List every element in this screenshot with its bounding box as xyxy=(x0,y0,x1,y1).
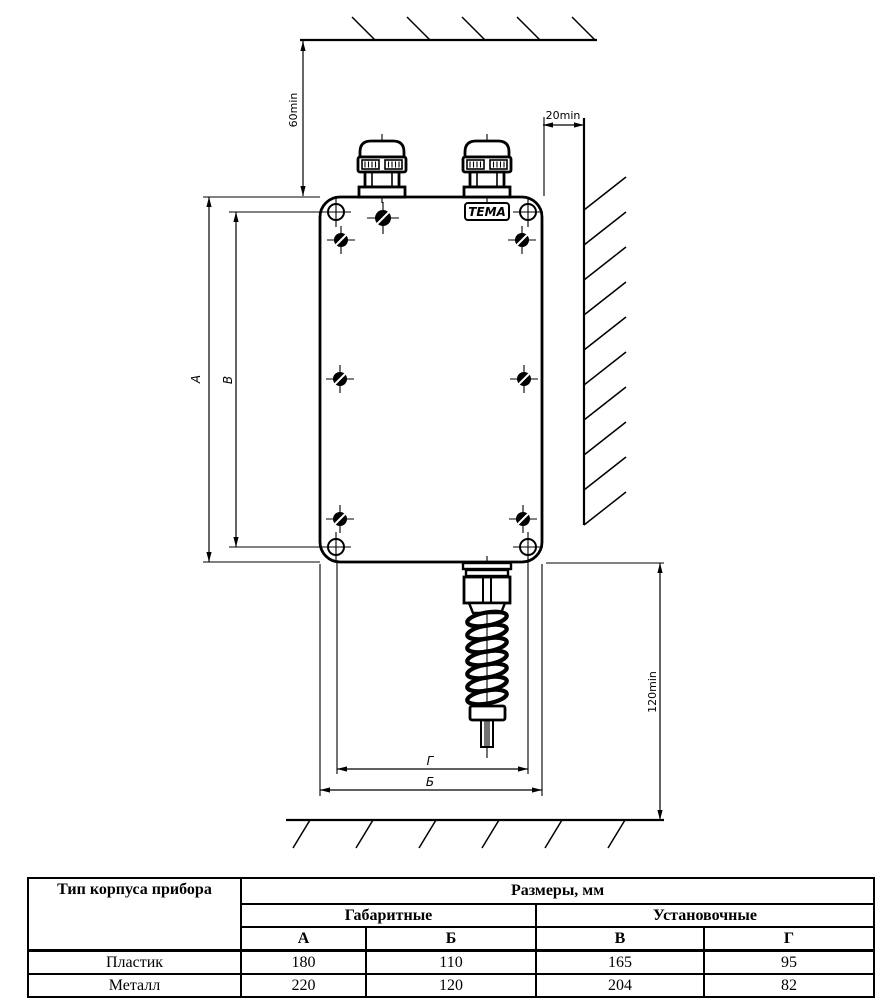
ceiling-wall xyxy=(300,17,597,40)
installation-drawing: ТЕМА xyxy=(0,0,881,872)
cable-gland-bottom xyxy=(463,556,511,758)
dim-overall-width: Б xyxy=(320,775,542,793)
dim-mounting-height: В xyxy=(221,212,239,547)
table-col-V: В xyxy=(536,927,704,951)
dim-label-G: Г xyxy=(427,754,435,768)
table-header-type: Тип корпуса прибора xyxy=(28,878,241,951)
table-col-G: Г xyxy=(704,927,874,951)
mounting-drawing-page: ТЕМА xyxy=(0,0,881,1000)
row-value-V: 204 xyxy=(536,974,704,997)
table-group-overall: Габаритные xyxy=(241,904,536,927)
table-group-mounting: Установочные xyxy=(536,904,874,927)
row-value-B: 110 xyxy=(366,951,536,975)
right-wall-hatching xyxy=(584,177,626,525)
row-type: Пластик xyxy=(28,951,241,975)
row-value-B: 120 xyxy=(366,974,536,997)
table-row-metal: Металл 220 120 204 82 xyxy=(28,974,874,997)
dim-side-clearance: 20min xyxy=(543,109,584,128)
floor xyxy=(286,820,664,848)
table-col-A: А xyxy=(241,927,366,951)
dim-label-V: В xyxy=(221,376,235,384)
enclosure-body: ТЕМА xyxy=(320,197,543,562)
dim-label-A: А xyxy=(189,375,203,384)
table-header-sizes: Размеры, мм xyxy=(241,878,874,904)
cable-gland-right xyxy=(463,134,511,203)
row-value-A: 180 xyxy=(241,951,366,975)
row-type: Металл xyxy=(28,974,241,997)
dim-label-B: Б xyxy=(426,775,434,789)
dim-bottom-clearance: 120min xyxy=(646,563,663,820)
floor-hatching xyxy=(293,820,625,848)
dim-label-20min: 20min xyxy=(546,109,581,122)
row-value-G: 82 xyxy=(704,974,874,997)
dim-label-60min: 60min xyxy=(287,93,300,128)
ceiling-hatching xyxy=(352,17,595,40)
brand-plate: ТЕМА xyxy=(465,203,509,220)
dim-label-120min: 120min xyxy=(646,671,659,713)
table-row-plastic: Пластик 180 110 165 95 xyxy=(28,951,874,975)
row-value-G: 95 xyxy=(704,951,874,975)
row-value-V: 165 xyxy=(536,951,704,975)
dim-overall-height: А xyxy=(189,197,212,562)
dim-mounting-width: Г xyxy=(337,754,528,772)
dimensions-table: Тип корпуса прибора Размеры, мм Габаритн… xyxy=(27,877,875,998)
dim-top-clearance: 60min xyxy=(287,41,306,196)
cable-gland-left xyxy=(358,134,406,203)
right-wall xyxy=(584,118,626,525)
brand-label: ТЕМА xyxy=(468,205,506,219)
row-value-A: 220 xyxy=(241,974,366,997)
table-col-B: Б xyxy=(366,927,536,951)
